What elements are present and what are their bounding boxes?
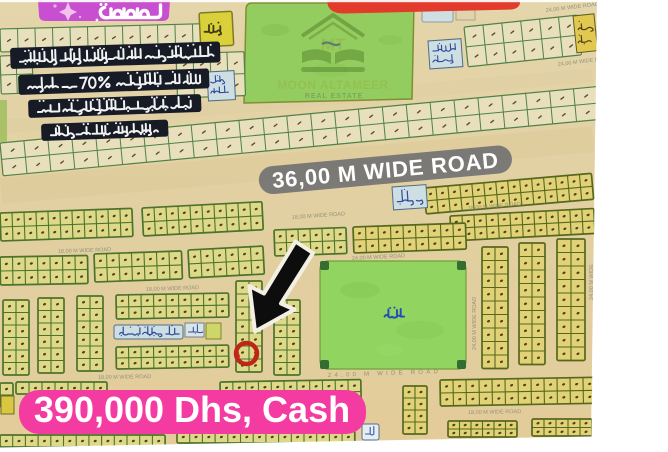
svg-text:390,000 Dhs, Cash: 390,000 Dhs, Cash: [34, 389, 350, 430]
svg-text:MOON ALTAMEER: MOON ALTAMEER: [277, 78, 389, 92]
svg-text:REAL ESTATE: REAL ESTATE: [305, 93, 363, 100]
